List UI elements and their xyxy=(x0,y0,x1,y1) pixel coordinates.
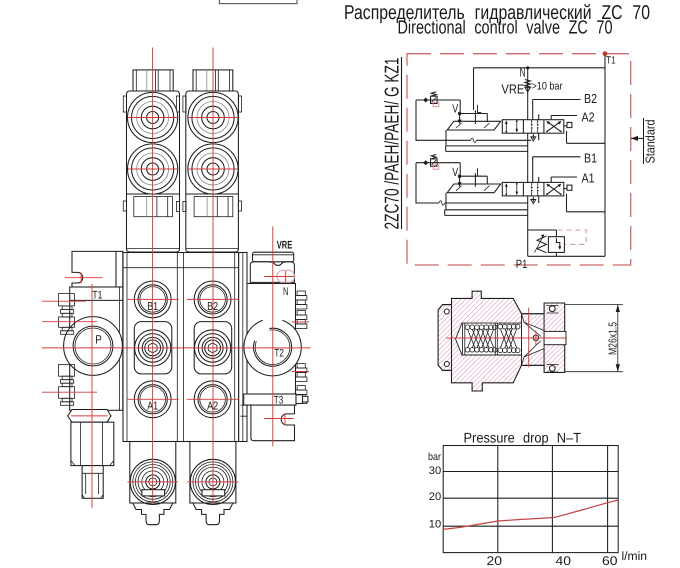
svg-text:10: 10 xyxy=(429,519,441,531)
svg-text:A2: A2 xyxy=(582,110,595,125)
svg-text:60: 60 xyxy=(602,554,618,568)
svg-text:Standard: Standard xyxy=(643,120,658,164)
svg-text:N: N xyxy=(283,286,289,298)
svg-text:VRE: VRE xyxy=(501,82,524,97)
svg-text:Directional control valve ZC 7: Directional control valve ZC 70 xyxy=(398,18,613,39)
svg-text:bar: bar xyxy=(428,451,441,463)
svg-text:V: V xyxy=(452,101,458,115)
svg-text:20: 20 xyxy=(429,491,441,503)
svg-text:N: N xyxy=(520,66,526,80)
svg-text:L: L xyxy=(476,166,482,180)
svg-text:V: V xyxy=(452,165,458,179)
svg-text:2ZC70 /PAEH/PAEH/ G KZ1: 2ZC70 /PAEH/PAEH/ G KZ1 xyxy=(382,58,404,230)
svg-text:T1: T1 xyxy=(606,55,616,67)
svg-text:40: 40 xyxy=(556,554,572,568)
svg-text:Pressure drop N–T: Pressure drop N–T xyxy=(464,430,582,446)
svg-text:P: P xyxy=(95,332,102,346)
svg-text:L: L xyxy=(476,102,482,116)
svg-text:VRE: VRE xyxy=(277,240,292,252)
svg-text:30: 30 xyxy=(429,465,441,477)
svg-text:B2: B2 xyxy=(584,91,597,106)
svg-text:20: 20 xyxy=(487,554,503,568)
svg-text:>10 bar: >10 bar xyxy=(532,81,563,93)
svg-text:A1: A1 xyxy=(582,171,595,186)
svg-text:T1: T1 xyxy=(92,290,102,302)
svg-text:P1: P1 xyxy=(516,257,528,271)
svg-text:M26x1.5: M26x1.5 xyxy=(608,322,620,355)
svg-text:T2: T2 xyxy=(274,347,284,359)
svg-text:l/min: l/min xyxy=(622,549,648,563)
svg-text:B1: B1 xyxy=(584,151,597,166)
